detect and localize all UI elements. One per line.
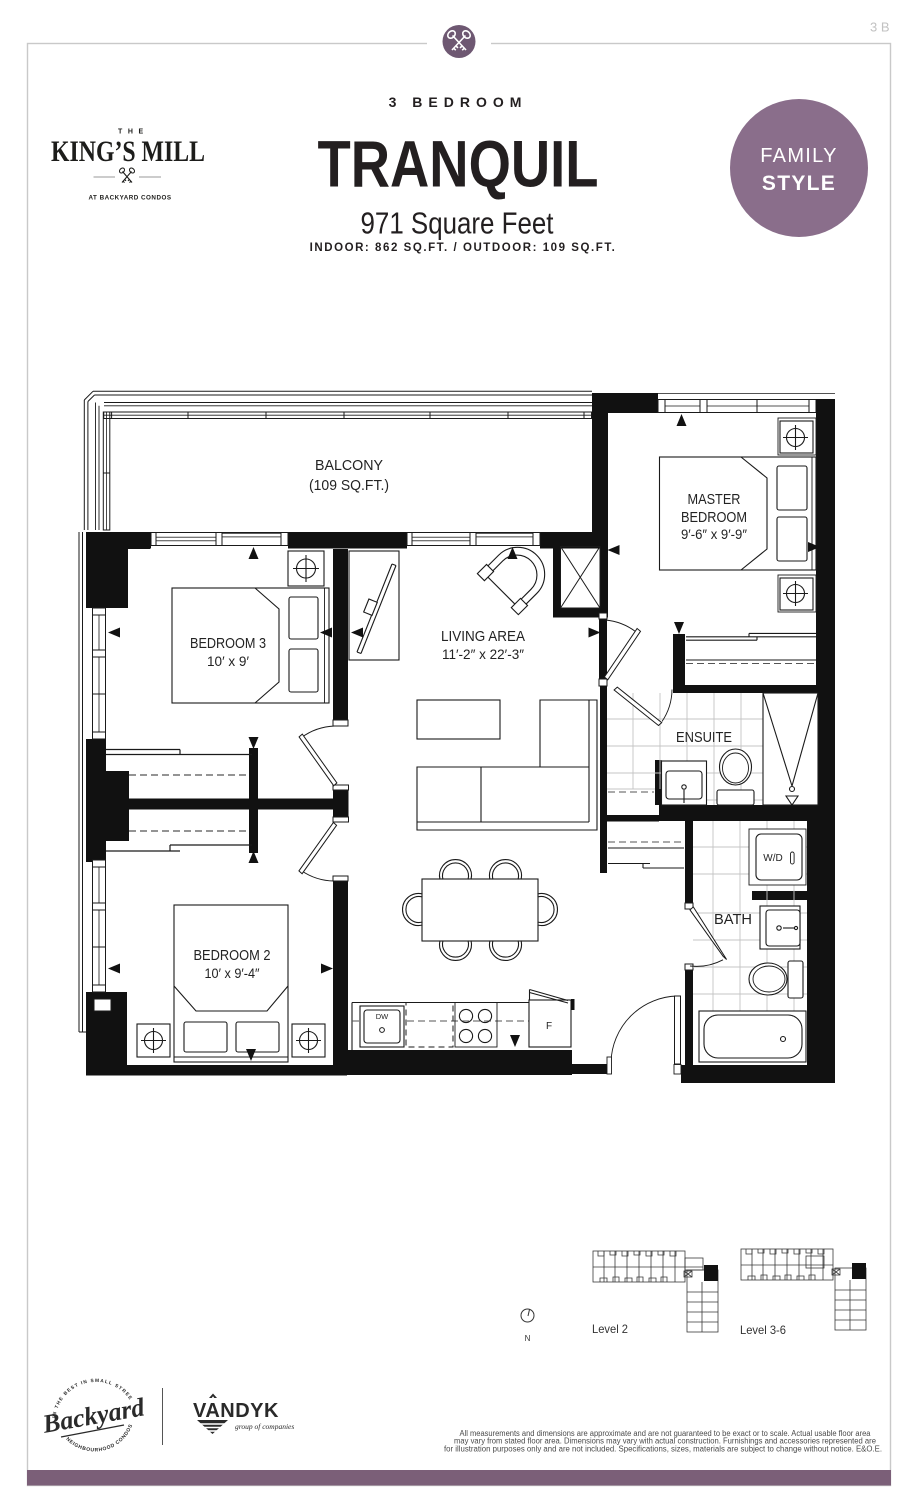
svg-text:10′ x 9′: 10′ x 9′ — [207, 653, 249, 669]
svg-text:FAMILY: FAMILY — [760, 145, 837, 167]
svg-text:LIVING AREA: LIVING AREA — [441, 628, 525, 645]
svg-text:W/D: W/D — [763, 853, 782, 864]
svg-text:3 B: 3 B — [870, 20, 890, 35]
svg-text:BEDROOM 3: BEDROOM 3 — [190, 635, 266, 652]
svg-text:10′ x 9′-4″: 10′ x 9′-4″ — [205, 965, 260, 981]
svg-text:KING’S MILL: KING’S MILL — [51, 135, 205, 168]
svg-text:BEDROOM: BEDROOM — [681, 509, 747, 526]
svg-text:9′-6″ x 9′-9″: 9′-6″ x 9′-9″ — [681, 526, 747, 542]
svg-text:ENSUITE: ENSUITE — [676, 729, 732, 746]
svg-text:DW: DW — [376, 1012, 389, 1021]
svg-text:N: N — [525, 1334, 531, 1343]
svg-text:Level 2: Level 2 — [592, 1322, 628, 1336]
svg-text:971 Square Feet: 971 Square Feet — [361, 206, 554, 241]
svg-text:MASTER: MASTER — [688, 491, 741, 508]
svg-text:AT BACKYARD CONDOS: AT BACKYARD CONDOS — [89, 195, 172, 202]
svg-text:group of companies: group of companies — [235, 1422, 294, 1431]
svg-text:BATH: BATH — [714, 911, 752, 928]
svg-text:INDOOR: 862 SQ.FT. / OUTDOOR:: INDOOR: 862 SQ.FT. / OUTDOOR: 109 SQ.FT. — [310, 242, 617, 254]
svg-text:11′-2″ x 22′-3″: 11′-2″ x 22′-3″ — [442, 646, 524, 662]
svg-text:Level 3-6: Level 3-6 — [740, 1323, 786, 1337]
svg-text:TRANQUIL: TRANQUIL — [318, 127, 599, 201]
svg-text:for illustration purposes only: for illustration purposes only and are n… — [444, 1444, 882, 1453]
svg-text:VANDYK: VANDYK — [193, 1400, 279, 1422]
svg-text:BEDROOM 2: BEDROOM 2 — [194, 947, 271, 964]
svg-text:3 BEDROOM: 3 BEDROOM — [389, 94, 528, 110]
svg-text:BALCONY: BALCONY — [315, 457, 383, 474]
svg-text:(109 SQ.FT.): (109 SQ.FT.) — [309, 477, 389, 494]
svg-text:STYLE: STYLE — [762, 172, 836, 195]
svg-text:F: F — [546, 1021, 552, 1032]
